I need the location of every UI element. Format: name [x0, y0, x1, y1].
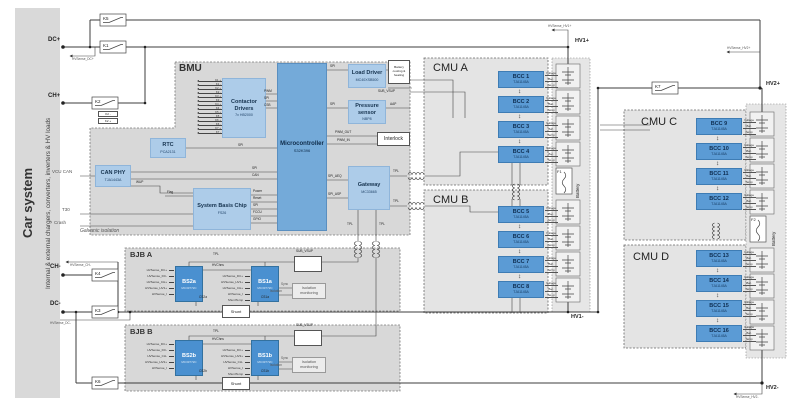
bjb-b-label: BJB B [130, 328, 153, 336]
contactor-k4: K4 [95, 272, 101, 277]
sig-fccu: FCCU [253, 211, 262, 214]
bcc-bal-tap: Bal. [545, 153, 558, 156]
k2-plus-coil: K2 + [98, 118, 118, 124]
sig-tpl-b2: TPL [379, 223, 385, 226]
dc-minus-terminal: DC- [50, 301, 61, 307]
sig-spi-aeq: SPI_AEQ [328, 175, 342, 178]
t30-label: T30 [62, 208, 70, 213]
bcc-block: BCC 11TJA1145A Voltage Bal. Temp [696, 168, 742, 185]
contactor-k3: K3 [95, 309, 101, 314]
sig-spi-asp: SPI_ASP [328, 193, 341, 196]
hv-sense-input: HVSense_I [205, 292, 249, 297]
bcc-block: BCC 2TJA1145A Voltage Bal. Temp [498, 96, 544, 113]
bcc-block: BCC 1TJA1145A Voltage Bal. Temp [498, 71, 544, 88]
tpl-bjba: TPL [213, 253, 219, 256]
bcc-block: BCC 12TJA1145A Voltage Bal. Temp [696, 193, 742, 210]
cs1a-label: CS1a [261, 296, 269, 299]
bcc-temp-tap: Temp [545, 134, 558, 137]
sense-dc-minus: HVSense_DC- [50, 322, 71, 325]
battery-cooling-box: Battery cooling & heating [388, 60, 410, 84]
hvchns-a: HVChns [212, 264, 224, 267]
bcc-temp-tap: Temp [545, 84, 558, 87]
hv-sense-input: HVSense_DC+ [205, 348, 249, 353]
sig-can: CAN [252, 174, 259, 177]
sidebar-subtitle: Internal & external chargers, converters… [45, 8, 52, 398]
dcdc-a-box [294, 256, 322, 272]
cmu-d-label: CMU D [633, 252, 669, 263]
shunt-b: Shunt [222, 377, 250, 390]
sense-dc-plus: HVSense_DC+ [72, 58, 94, 61]
sig-spi-rtc: SPI [238, 144, 243, 147]
bcc-voltage-tap: Voltage [545, 72, 558, 75]
k2-minus-coil: K2 - [98, 111, 118, 117]
contactor-k2: K2 [95, 100, 101, 105]
battery1-label: Battery [576, 166, 581, 198]
sig-pwm: PWM [264, 90, 272, 93]
ch-minus-terminal: CH- [50, 264, 61, 270]
cmu-a-label: CMU A [433, 63, 468, 74]
hv-sense-input: HVSense_DC+ [128, 268, 173, 273]
sync-b: Sync [281, 357, 288, 360]
bmu-label: BMU [179, 64, 202, 74]
hv-sense-input: HVSense_I [205, 366, 249, 371]
bcc-block: BCC 16TJA1145A Voltage Bal. Temp [696, 325, 742, 342]
vcu-can-label: VCU CAN [52, 170, 72, 175]
sig-gpio: GPIO [253, 218, 261, 221]
gateway-block: Gateway MC33665 [348, 166, 390, 210]
bcc-block: BCC 7TJA1145A Voltage Bal. Temp [498, 256, 544, 273]
sig-wup: WUP [136, 181, 143, 184]
sidebar-title: Car system [20, 8, 35, 398]
bcc-block: BCC 4TJA1145A Voltage Bal. Temp [498, 146, 544, 163]
interlock-box: Interlock [377, 132, 410, 146]
sub-vsup-a: SUB_VSUP [296, 250, 313, 253]
bcc-voltage-tap: Voltage [545, 97, 558, 100]
fuse-f1-label: F1 [557, 170, 562, 174]
hv-sense-input: ShuntTemp [205, 298, 249, 303]
sig-spi-canphy: SPI [252, 167, 257, 170]
microcontroller-block: Microcontroller S32K396 [277, 63, 327, 231]
hv-sense-input: HVSense_DC- [128, 348, 173, 353]
hv-sense-input: HVSense_I [128, 292, 173, 297]
pressure-sensor-block: Pressure sensor NBP8 [348, 100, 386, 124]
contactor-k1: K1 [103, 44, 109, 49]
sig-spi-cd: SPI [264, 97, 269, 100]
hv2-minus-label: HV2- [766, 386, 779, 392]
sig-spi-ps: SPI [330, 103, 335, 106]
bcc-temp-tap: Temp [545, 109, 558, 112]
hv1-plus-label: HV1+ [575, 39, 589, 45]
sub-vsup-b: SUB_VSUP [296, 324, 313, 327]
bcc-block: BCC 13TJA1145A Voltage Bal. Temp [696, 250, 742, 267]
contactor-pin-row: K7 - [197, 131, 222, 135]
hv-sense-input: HVSense_HV2+ [128, 360, 173, 365]
bjb-a-label: BJB A [130, 251, 152, 259]
sig-spi-sbc: SPI [253, 204, 258, 207]
cmu-b-label: CMU B [433, 195, 468, 206]
tpl-bjbb: TPL [213, 330, 219, 333]
hv-sense-input: HVSense_CH- [128, 354, 173, 359]
hv1-minus-label: HV1- [571, 315, 584, 321]
cmu-c-label: CMU C [641, 117, 677, 128]
dcdc-b-box [294, 330, 322, 346]
hvchns-b: HVChns [212, 338, 224, 341]
bcc-bal-tap: Bal. [545, 128, 558, 131]
sig-flag: Flag [167, 191, 173, 194]
cs2b-label: CS2b [199, 370, 207, 373]
bcc-bal-tap: Bal. [545, 78, 558, 81]
hv-sense-input: HVSense_I [128, 366, 173, 371]
cs2a-label: CS2a [199, 296, 207, 299]
hv-sense-input: HVSense_DC+ [128, 342, 173, 347]
contactor-k7: K7 [655, 85, 661, 90]
sig-aap: AAP [390, 103, 396, 106]
hv2-plus-label: HV2+ [766, 82, 780, 88]
sig-sub-vsup-bmu: SUB_VSUP [378, 90, 395, 93]
hv-sense-input: HVSense_DC- [128, 274, 173, 279]
contactor-k6: K6 [95, 380, 101, 385]
bcc-block: BCC 9TJA1145A Voltage Bal. Temp [696, 118, 742, 135]
hv-sense-input: HVSense_CH+ [128, 280, 173, 285]
battery2-label: Battery [772, 214, 777, 246]
sig-pwm-in: PWM_IN [337, 139, 350, 142]
hv-sense-input: HVSense_DC+ [205, 274, 249, 279]
bcc-block: BCC 14TJA1145A Voltage Bal. Temp [696, 275, 742, 292]
can-phy-block: CAN PHY TJA1443A [95, 165, 131, 187]
bcc-bal-tap: Bal. [545, 103, 558, 106]
crash-label: Crash [54, 221, 66, 226]
sense-hv1-plus: HVSense_HV1+ [548, 25, 571, 28]
fuse-f2-label: F2 [751, 218, 756, 222]
shunt-a: Shunt [222, 305, 250, 318]
isolation-a: Isolation [270, 290, 282, 293]
sig-power: Power [253, 190, 262, 193]
sbc-block: System Basis Chip FS26 [193, 188, 251, 230]
sense-hv2-minus: HVSense_HV2- [736, 396, 759, 399]
bcc-block: BCC 6TJA1145A Voltage Bal. Temp [498, 231, 544, 248]
sig-spi-ld: SPI [330, 65, 335, 68]
load-driver-block: Load Driver MC40XSB500 [348, 64, 386, 88]
sig-tpl-r1: TPL [393, 170, 399, 173]
car-system-sidebar: Car system Internal & external chargers,… [15, 8, 60, 398]
bcc-voltage-tap: Voltage [545, 122, 558, 125]
hv-sense-input: HVSense_HV1+ [128, 286, 173, 291]
galvanic-isolation-label: Galvanic isolation [80, 229, 119, 234]
isolation-b: Isolation [270, 364, 282, 367]
hv-sense-input: HVSense_HV2+ [205, 354, 249, 359]
sig-reset: Reset [253, 197, 261, 200]
sig-tpl-r2: TPL [393, 200, 399, 203]
bcc-temp-tap: Temp [545, 159, 558, 162]
bcc-block: BCC 3TJA1145A Voltage Bal. Temp [498, 121, 544, 138]
sense-ch-minus: HVSense_CH- [70, 264, 91, 267]
bcc-voltage-tap: Voltage [545, 147, 558, 150]
sig-pwm-out: PWM_OUT [335, 131, 351, 134]
hv-sense-input: HVSense_CH- [205, 360, 249, 365]
bcc-block: BCC 8TJA1145A Voltage Bal. Temp [498, 281, 544, 298]
hv-sense-input: HVSense_CH+ [205, 286, 249, 291]
bcc-block: BCC 15TJA1145A Voltage Bal. Temp [696, 300, 742, 317]
cs1b-label: CS1b [261, 370, 269, 373]
sense-hv2-plus: HVSense_HV2+ [727, 47, 750, 50]
bcc-block: BCC 5TJA1145A Voltage Bal. Temp [498, 206, 544, 223]
isolation-monitoring-b: Isolation monitoring [292, 357, 326, 373]
sync-a: Sync [281, 283, 288, 286]
hvbms-block-diagram: Car system Internal & external chargers,… [0, 0, 800, 406]
dc-plus-terminal: DC+ [48, 37, 60, 43]
bcc-block: BCC 10TJA1145A Voltage Bal. Temp [696, 143, 742, 160]
contactor-drivers-block: Contactor Drivers 7x HB2000 [222, 78, 266, 138]
hv-sense-input: HVSense_HV1+ [205, 280, 249, 285]
contactor-k5: K5 [103, 17, 109, 22]
rtc-block: RTC PCA2131 [150, 138, 186, 158]
sig-tpl-b1: TPL [347, 223, 353, 226]
ch-plus-terminal: CH+ [48, 93, 60, 99]
sig-csb: CSB [264, 104, 271, 107]
isolation-monitoring-a: Isolation monitoring [292, 283, 326, 299]
